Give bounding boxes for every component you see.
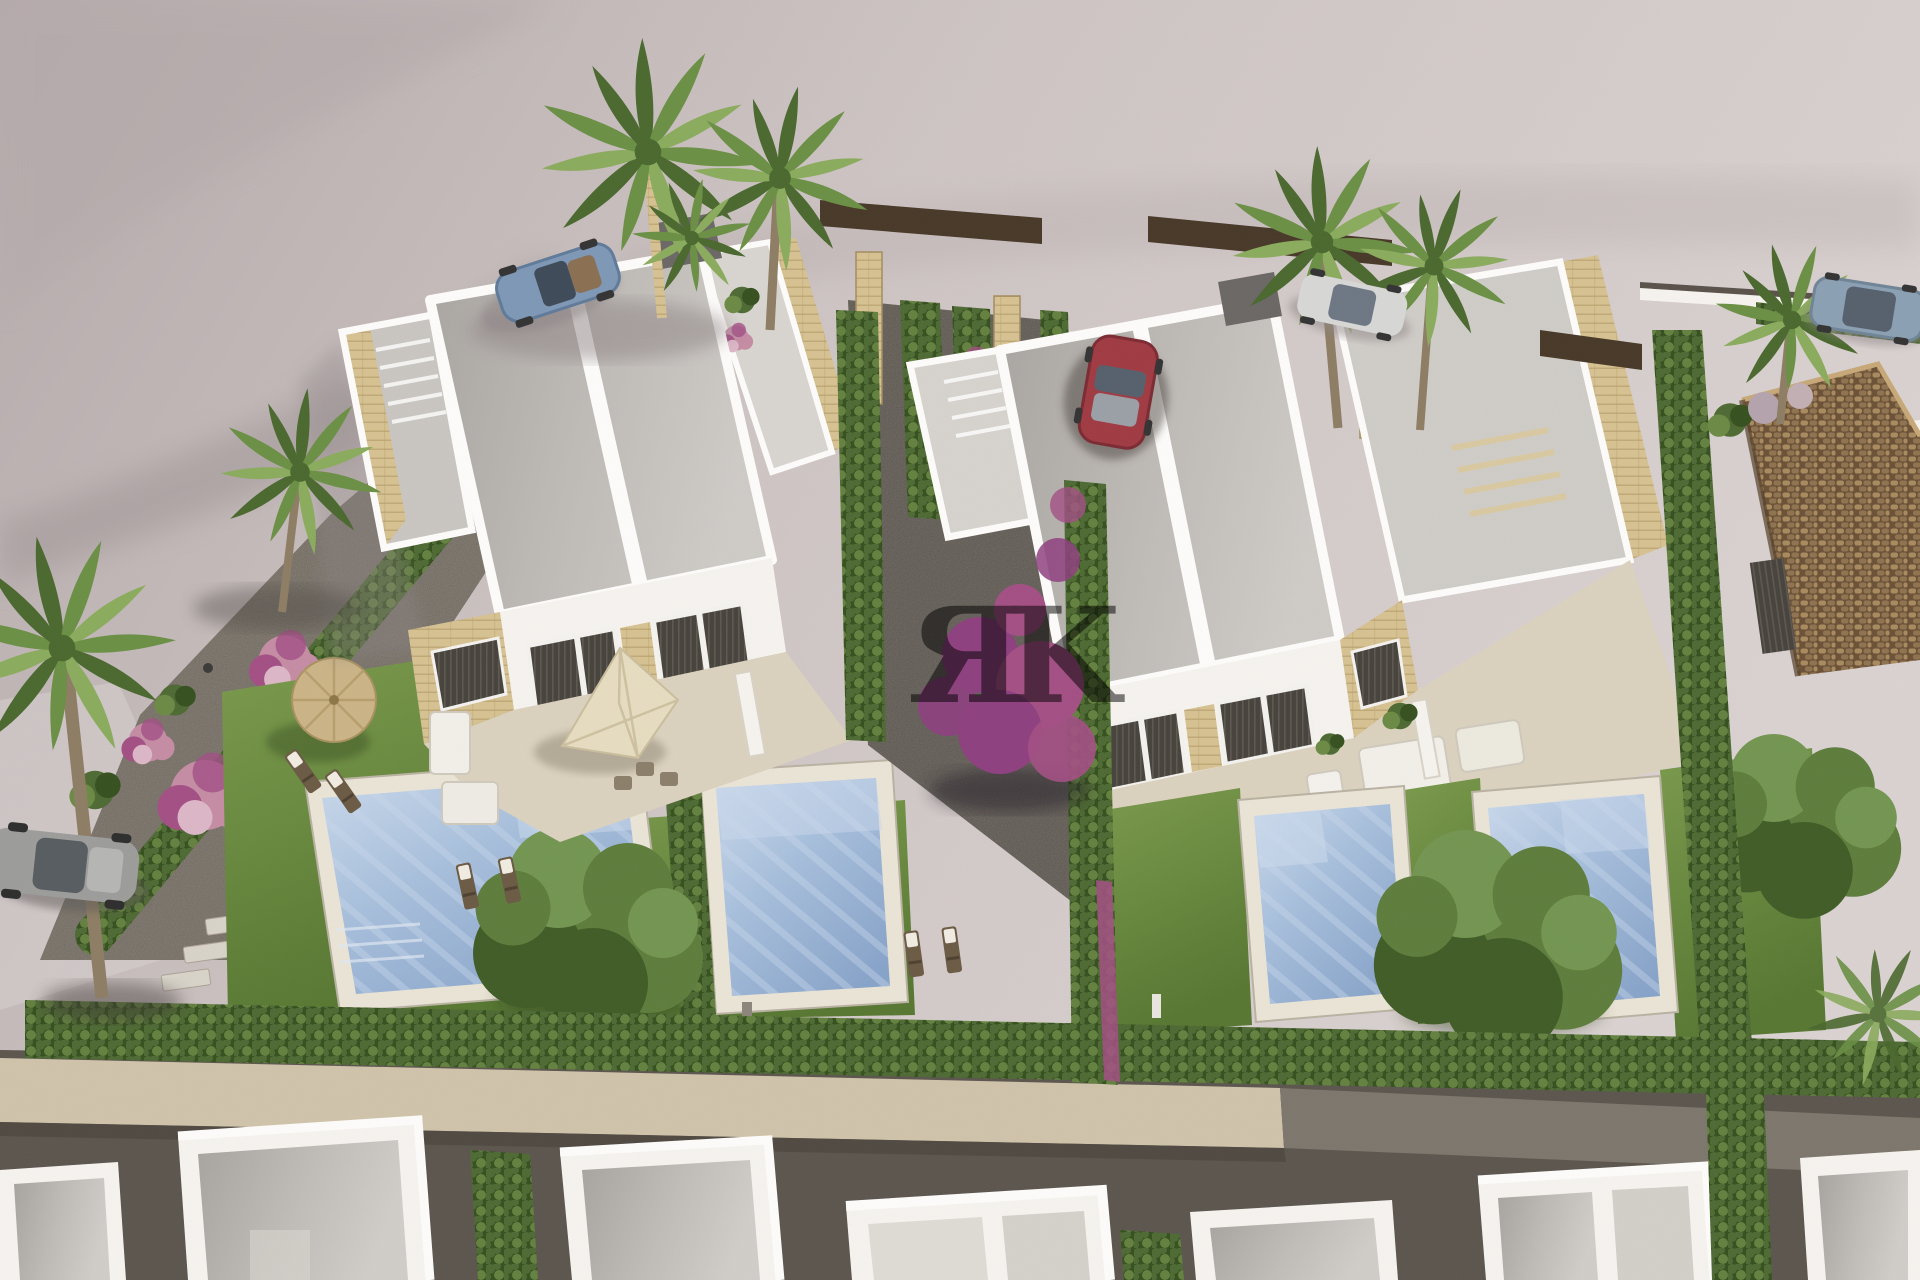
render-image: ЯK — [0, 0, 1920, 1280]
scene-canvas: ЯK — [0, 0, 1920, 1280]
watermark: ЯK — [908, 579, 1125, 734]
